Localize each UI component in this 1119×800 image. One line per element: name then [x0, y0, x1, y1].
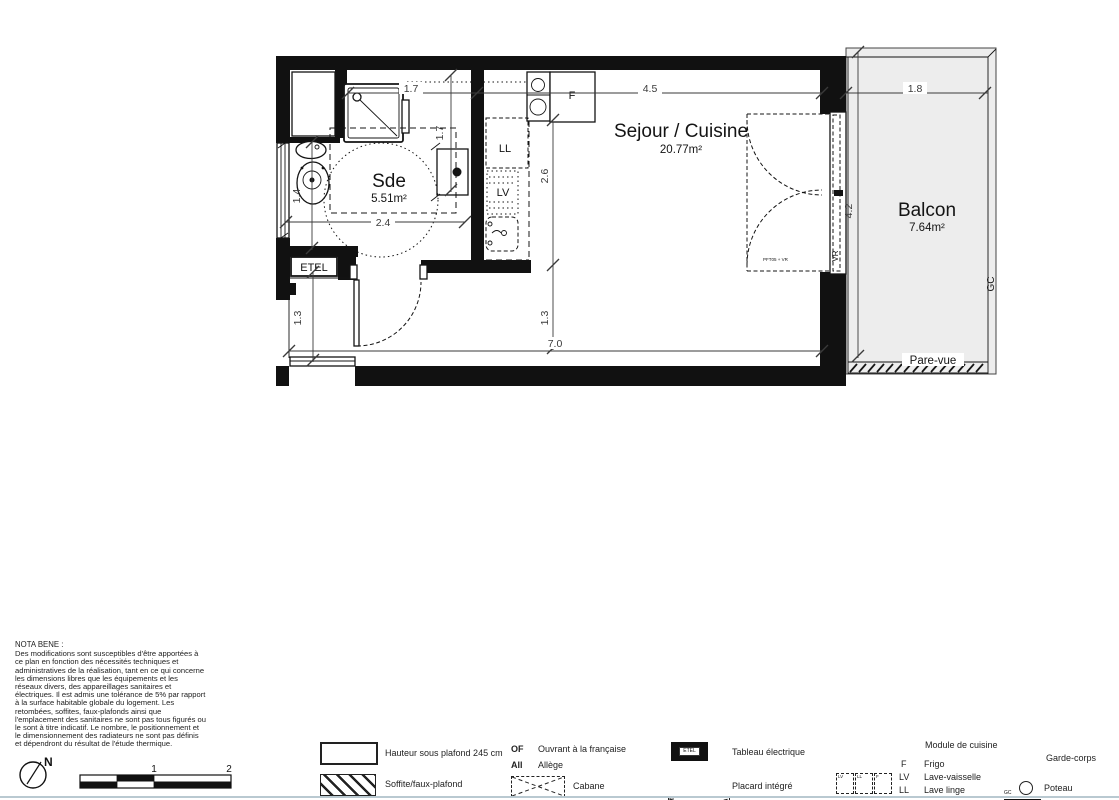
technical-shaft: [292, 72, 335, 136]
stove: [527, 72, 550, 121]
dim-1.3-mid: 1.3: [539, 311, 551, 326]
dim-4.5: 4.5: [643, 83, 658, 95]
bathroom-door: [350, 265, 427, 346]
module-box-lv: LV: [836, 773, 854, 794]
kitchen-sink: [486, 217, 518, 251]
page: Pare-vue GC Balcon 7.64m²: [0, 0, 1119, 800]
of-label: Ouvrant à la française: [538, 744, 626, 754]
pare-vue-label: Pare-vue: [910, 355, 957, 367]
lave-linge-label: Lave linge: [924, 785, 965, 795]
lave-vaisselle-label: Lave-vaisselle: [924, 772, 981, 782]
frigo-label: Frigo: [924, 759, 945, 769]
tableau-symbol-text: ETEL: [679, 747, 700, 756]
compass-scalebar: N 1 2: [0, 745, 260, 795]
gc-label: GC: [986, 277, 997, 292]
room-balcon-area: 7.64m²: [909, 222, 945, 234]
dim-2.6: 2.6: [539, 169, 551, 184]
etel-plan-label: ETEL: [300, 262, 328, 274]
living-room: Sejour / Cuisine 20.77m²: [614, 121, 748, 156]
dim-4.2: 4.2: [843, 204, 855, 219]
scale-bar: 1 2: [80, 764, 232, 788]
placard-label: Placard intégré: [732, 781, 793, 791]
vr-label: VR: [831, 250, 840, 261]
poteau-label: Poteau: [1044, 783, 1073, 793]
washing-machine: LL: [486, 118, 528, 168]
lave-vaisselle-abbr: LV: [899, 772, 909, 782]
scale-1-label: 1: [151, 764, 157, 775]
bottom-divider: [0, 796, 1119, 798]
nota-bene-title: NOTA BENE :: [15, 641, 211, 649]
module-cuisine-symbol: LV LL F: [836, 773, 892, 794]
dim-2.4: 2.4: [376, 217, 391, 229]
etel-box: ETEL: [291, 257, 337, 276]
balcony: Pare-vue GC Balcon 7.64m²: [846, 48, 997, 374]
soffit-label: Soffite/faux-plafond: [385, 779, 462, 789]
pft-label: PFT05 + VR: [763, 257, 789, 262]
north-label: N: [44, 755, 53, 769]
room-sejour-area: 20.77m²: [660, 144, 702, 156]
room-balcon-name: Balcon: [898, 200, 956, 221]
lv-label: LV: [497, 187, 510, 199]
scale-2-label: 2: [226, 764, 232, 775]
garde-corps-label: Garde-corps: [1046, 753, 1096, 763]
ceiling-height-symbol: [320, 742, 378, 765]
north-compass: N: [20, 755, 53, 788]
module-cuisine-header: Module de cuisine: [925, 740, 998, 750]
module-box-ll: LL: [855, 773, 873, 794]
all-abbr: All: [511, 760, 523, 770]
nota-bene: NOTA BENE : Des modifications sont susce…: [15, 641, 211, 749]
dim-7.0: 7.0: [548, 338, 563, 350]
french-door: PFT05 + VR VR: [747, 112, 846, 274]
tableau-label: Tableau électrique: [732, 747, 805, 757]
cabane-x-icon: [512, 777, 564, 796]
dim-1.7-v: 1.7: [434, 126, 446, 141]
dim-1.3-left: 1.3: [292, 311, 304, 326]
dim-1.4: 1.4: [291, 189, 303, 204]
dishwasher: LV: [487, 171, 518, 214]
fridge-label: F: [569, 90, 576, 102]
room-sde-name: Sde: [372, 171, 406, 192]
entry-door: [290, 357, 355, 366]
frigo-abbr: F: [901, 759, 907, 769]
tableau-symbol: ETEL: [671, 742, 708, 761]
soffit-symbol: [320, 774, 376, 796]
room-sejour-name: Sejour / Cuisine: [614, 121, 748, 142]
ll-label: LL: [499, 143, 511, 155]
all-label: Allège: [538, 760, 563, 770]
dim-1.7-top: 1.7: [404, 83, 419, 95]
floor-plan: Pare-vue GC Balcon 7.64m²: [0, 0, 1119, 430]
kitchen: F LL LV: [486, 72, 595, 260]
room-sde-area: 5.51m²: [371, 193, 407, 205]
fridge: F: [550, 72, 595, 122]
dim-1.8: 1.8: [908, 83, 923, 95]
ceiling-height-label: Hauteur sous plafond 245 cm: [385, 748, 503, 758]
of-abbr: OF: [511, 744, 524, 754]
nota-bene-body: Des modifications sont susceptibles d'êt…: [15, 650, 211, 748]
cabane-label: Cabane: [573, 781, 605, 791]
lave-linge-abbr: LL: [899, 785, 909, 795]
poteau-symbol: [1019, 781, 1033, 795]
cabane-symbol: [511, 776, 565, 797]
module-box-f: F: [874, 773, 892, 794]
